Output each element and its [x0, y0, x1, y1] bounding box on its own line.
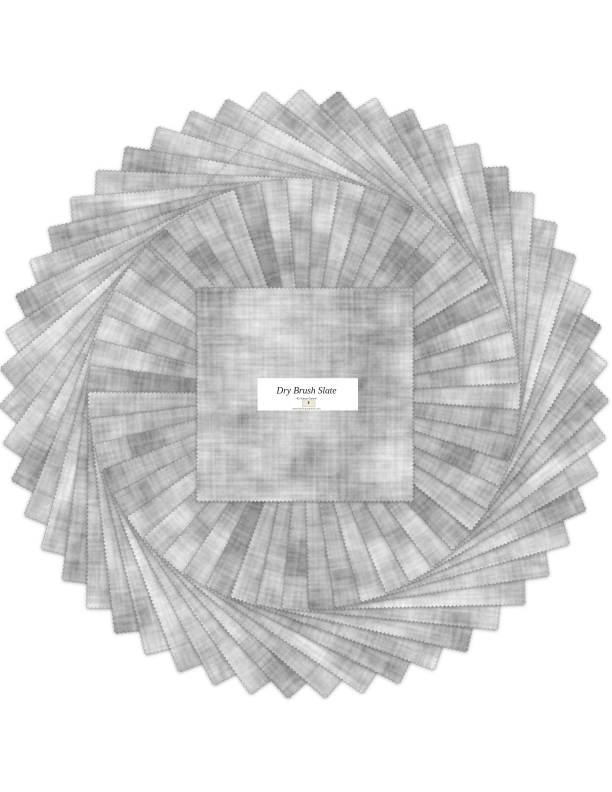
svg-text:Dry Brush Slate: Dry Brush Slate	[276, 387, 337, 397]
svg-text:42 Karat Gems: 42 Karat Gems	[296, 396, 317, 400]
svg-text:www.wilmingtonprints.com: www.wilmingtonprints.com	[292, 407, 320, 410]
